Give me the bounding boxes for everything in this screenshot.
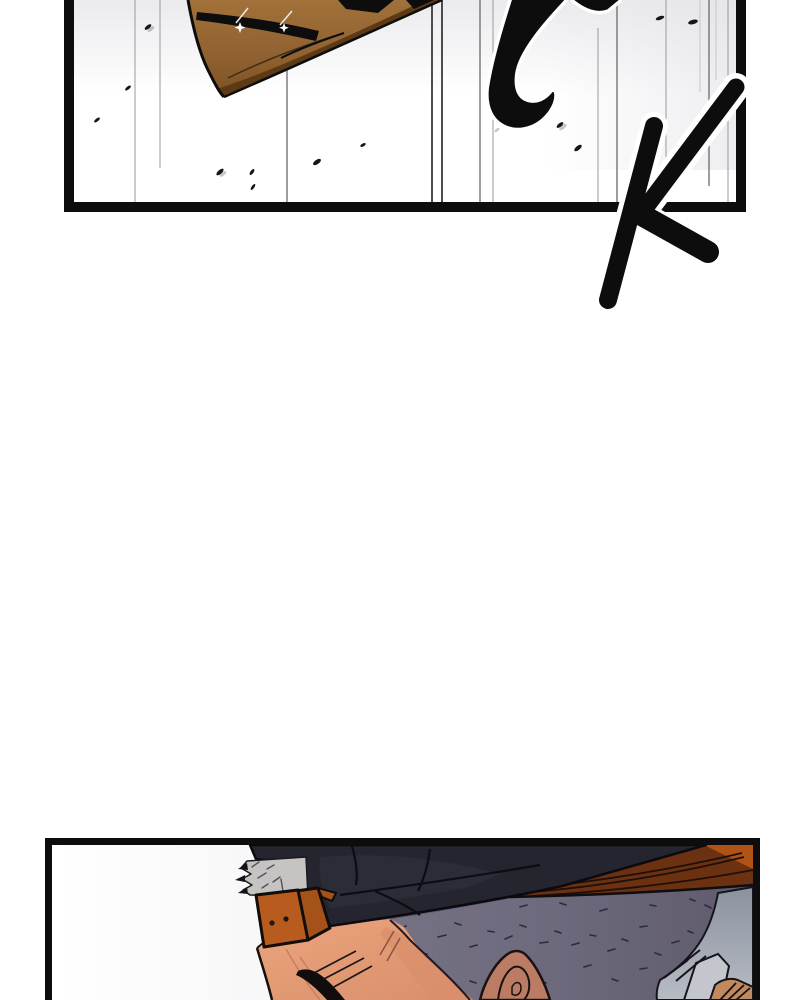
webtoon-page [0,0,800,1000]
closeup-panel-interior [52,845,753,1000]
panel-gutter [0,320,800,835]
panel-closeup [0,835,800,1000]
panel-impact [0,0,800,320]
